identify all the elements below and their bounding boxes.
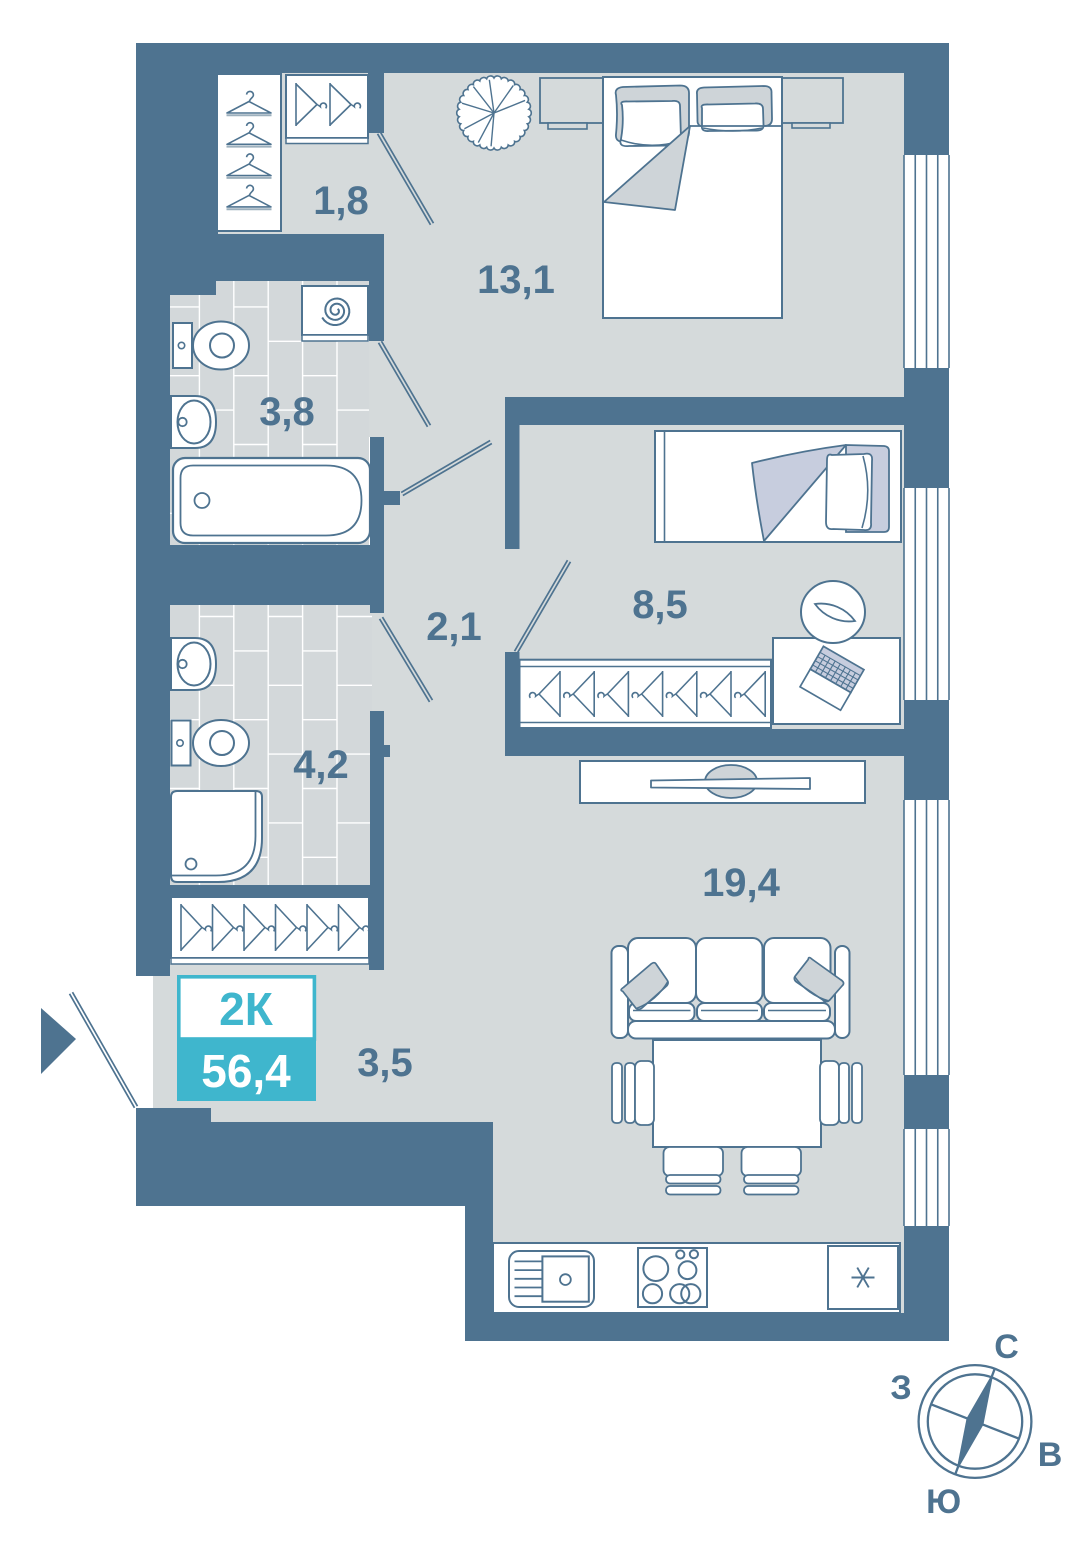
svg-text:Ю: Ю	[926, 1483, 961, 1521]
svg-text:2К: 2К	[219, 983, 274, 1035]
svg-text:56,4: 56,4	[201, 1045, 291, 1097]
svg-text:С: С	[994, 1328, 1019, 1366]
svg-text:3,5: 3,5	[357, 1041, 413, 1085]
svg-text:13,1: 13,1	[477, 258, 555, 302]
svg-text:2,1: 2,1	[426, 605, 482, 649]
svg-text:З: З	[890, 1369, 911, 1407]
svg-text:1,8: 1,8	[313, 179, 369, 223]
svg-text:8,5: 8,5	[632, 583, 688, 627]
svg-text:3,8: 3,8	[259, 390, 315, 434]
svg-text:19,4: 19,4	[702, 861, 781, 905]
svg-text:В: В	[1038, 1436, 1063, 1474]
svg-text:4,2: 4,2	[293, 743, 349, 787]
